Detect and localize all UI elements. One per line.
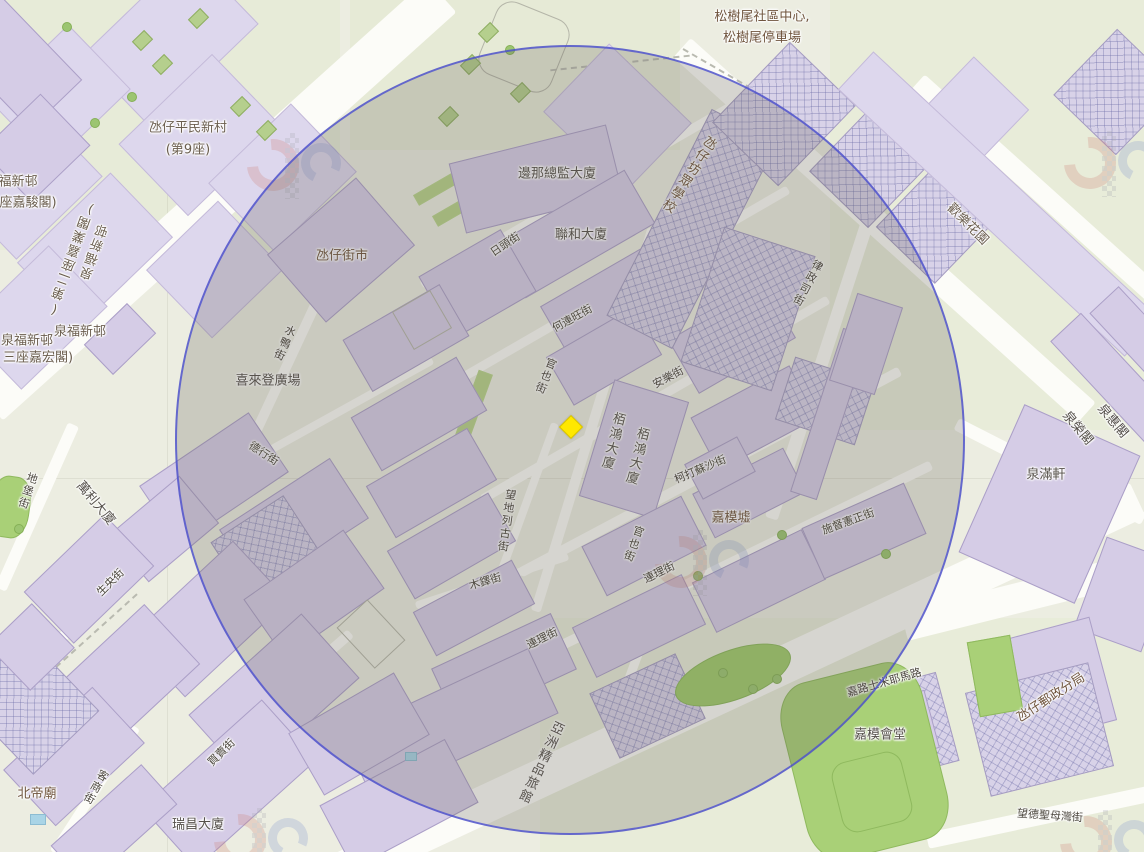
map-label-building: 邊那總監大廈 [518,163,596,182]
water-feature [30,814,46,825]
tree-icon [881,549,891,559]
water-feature [405,752,417,761]
map-label-place: 氹仔街市 [316,245,368,264]
map-label-building: 瑞昌大廈 [172,814,224,833]
map-label-place: 北帝廟 [17,783,56,802]
map-label-area: 氹仔平民新村 [149,117,227,136]
tree-icon [748,684,758,694]
map-label-area: 座嘉駿閣) [0,192,57,211]
map-label-place: 嘉模墟 [711,507,750,526]
map-watermark-logo [1064,131,1144,201]
map-watermark-logo [247,133,343,203]
map-label-building: 喜來登廣場 [235,370,300,389]
map-label-street: 官也街 [530,355,559,397]
map-label-area: 三座嘉宏閣) [3,347,73,366]
tree-icon [62,22,72,32]
map-label-area: 泉福新邨 [54,321,106,340]
map-label-place: 松樹尾停車場 [723,27,801,46]
tree-icon [777,530,787,540]
map-label-building: 聯和大廈 [555,224,607,243]
map-label-place: 松樹尾社區中心, [714,6,809,25]
map-label-area: (第9座) [166,139,210,158]
tree-icon [127,92,137,102]
map-label-area: 福新邨 [0,171,38,190]
map-label-building: 泉滿軒 [1026,464,1065,483]
tree-icon [505,45,515,55]
tree-icon [772,674,782,684]
tree-icon [14,524,24,534]
tree-icon [90,118,100,128]
map-canvas[interactable]: 松樹尾社區中心,松樹尾停車場氹仔平民新村(第9座)福新邨座嘉駿閣)泉福新邨(第二… [0,0,1144,852]
tree-icon [718,668,728,678]
map-label-building: 嘉模會堂 [854,724,906,743]
map-watermark-logo [214,808,310,852]
